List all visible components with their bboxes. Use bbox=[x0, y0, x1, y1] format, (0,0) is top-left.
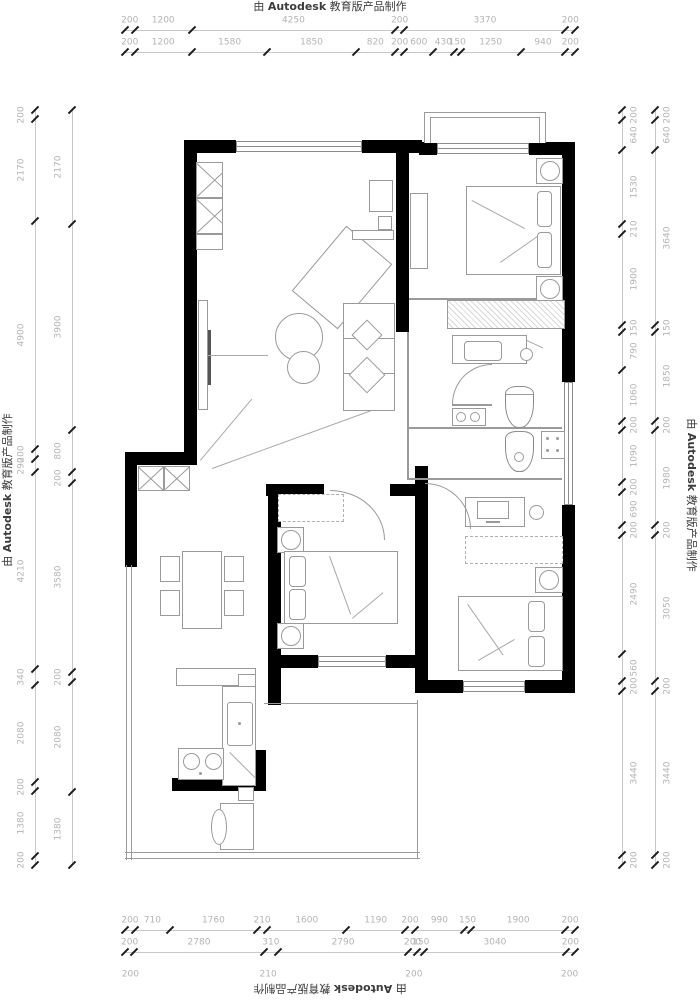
window bbox=[318, 656, 386, 667]
dimension-label: 150 bbox=[459, 917, 476, 926]
dimension-tick bbox=[651, 521, 659, 529]
dimension-tick bbox=[618, 426, 626, 434]
washing-machine-door bbox=[211, 809, 227, 845]
dimension-label: 430 bbox=[435, 39, 452, 48]
dimension-tick bbox=[31, 787, 39, 795]
dimension-label: 2080 bbox=[55, 726, 64, 749]
wall bbox=[386, 655, 415, 668]
dimension-tick bbox=[561, 948, 569, 956]
dimension-label: 200 bbox=[405, 971, 422, 980]
bath-wardrobe bbox=[447, 300, 565, 329]
dimension-tick bbox=[571, 48, 579, 56]
window bbox=[463, 681, 525, 692]
dimension-line bbox=[125, 52, 575, 53]
watermark-top: 由 Autodesk 教育版产品制作 bbox=[220, 0, 440, 14]
dimension-label: 2170 bbox=[18, 159, 27, 182]
dimension-label: 200 bbox=[18, 778, 27, 795]
dimension-tick bbox=[31, 665, 39, 673]
dimension-tick bbox=[651, 106, 659, 114]
watermark-suffix: 教育版产品制作 bbox=[326, 0, 407, 13]
lamp bbox=[540, 279, 560, 299]
dimension-tick bbox=[460, 926, 468, 934]
dimension-label: 1900 bbox=[507, 917, 530, 926]
dimension-tick bbox=[131, 926, 139, 934]
pillow bbox=[289, 589, 306, 620]
pillow bbox=[528, 636, 545, 667]
dimension-tick bbox=[263, 926, 271, 934]
pillow bbox=[528, 601, 545, 632]
wall bbox=[562, 142, 575, 382]
dimension-tick bbox=[263, 48, 271, 56]
dimension-label: 200 bbox=[562, 39, 579, 48]
wardrobe bbox=[410, 193, 428, 269]
dimension-label: 1090 bbox=[631, 445, 640, 468]
wardrobe bbox=[196, 162, 223, 198]
dimension-label: 3440 bbox=[631, 762, 640, 785]
dimension-label: 200 bbox=[561, 917, 578, 926]
dimension-label: 640 bbox=[631, 126, 640, 143]
dimension-tick bbox=[618, 146, 626, 154]
dimension-tick bbox=[618, 686, 626, 694]
sofa bbox=[343, 303, 395, 411]
chair bbox=[224, 556, 244, 582]
dimension-label: 2170 bbox=[55, 156, 64, 179]
dimension-label: 200 bbox=[121, 17, 138, 26]
dimension-line bbox=[125, 30, 575, 31]
washer-knob bbox=[556, 437, 559, 440]
dimension-tick bbox=[188, 26, 196, 34]
dimension-label: 200 bbox=[18, 446, 27, 463]
dimension-tick bbox=[31, 851, 39, 859]
dimension-label: 200 bbox=[18, 852, 27, 869]
door-arc bbox=[425, 483, 471, 529]
dimension-label: 1760 bbox=[202, 917, 225, 926]
dimension-tick bbox=[571, 926, 579, 934]
shoe-cabinet bbox=[138, 466, 164, 491]
chair bbox=[160, 590, 180, 616]
dimension-tick bbox=[130, 948, 138, 956]
dimension-tick bbox=[651, 530, 659, 538]
dimension-label: 200 bbox=[664, 521, 673, 538]
dimension-tick bbox=[68, 468, 76, 476]
dimension-label: 1600 bbox=[295, 917, 318, 926]
burner bbox=[183, 753, 200, 770]
window bbox=[236, 141, 362, 152]
wall bbox=[525, 680, 575, 693]
dimension-label: 3040 bbox=[484, 939, 507, 948]
dimension-tick bbox=[391, 48, 399, 56]
dimension-tick bbox=[651, 861, 659, 869]
dimension-tick bbox=[618, 530, 626, 538]
dimension-tick bbox=[391, 26, 399, 34]
dimension-tick bbox=[31, 778, 39, 786]
dimension-label: 290 bbox=[18, 457, 27, 474]
wall bbox=[427, 680, 463, 693]
dimension-label: 200 bbox=[391, 39, 408, 48]
pillow bbox=[537, 191, 552, 227]
sight-line bbox=[208, 355, 268, 356]
dimension-label: 1380 bbox=[18, 812, 27, 835]
dimension-tick bbox=[31, 216, 39, 224]
dimension-tick bbox=[68, 220, 76, 228]
watermark-brand: Autodesk bbox=[268, 0, 326, 13]
toilet bbox=[505, 386, 534, 428]
dimension-tick bbox=[274, 948, 282, 956]
lamp bbox=[281, 626, 301, 646]
dimension-tick bbox=[561, 48, 569, 56]
dimension-tick bbox=[413, 948, 421, 956]
wall bbox=[184, 140, 236, 153]
dimension-label: 200 bbox=[561, 971, 578, 980]
basin bbox=[456, 412, 466, 422]
wall bbox=[362, 140, 422, 153]
dimension-label: 990 bbox=[431, 917, 448, 926]
dimension-tick bbox=[651, 328, 659, 336]
dimension-tick bbox=[166, 926, 174, 934]
dimension-tick bbox=[253, 926, 261, 934]
dimension-label: 4900 bbox=[18, 324, 27, 347]
partition bbox=[409, 478, 562, 480]
dimension-tick bbox=[121, 948, 129, 956]
dimension-tick bbox=[31, 681, 39, 689]
dimension-label: 200 bbox=[664, 852, 673, 869]
dimension-tick bbox=[31, 455, 39, 463]
dimension-tick bbox=[68, 861, 76, 869]
washer-knob bbox=[556, 449, 559, 452]
dimension-label: 1200 bbox=[152, 17, 175, 26]
dimension-label: 200 bbox=[631, 479, 640, 496]
dimension-tick bbox=[449, 48, 457, 56]
dimension-tick bbox=[31, 445, 39, 453]
dimension-label: 560 bbox=[631, 659, 640, 676]
dimension-label: 200 bbox=[631, 677, 640, 694]
dimension-label: 310 bbox=[262, 939, 279, 948]
dimension-label: 150 bbox=[449, 39, 466, 48]
dimension-tick bbox=[68, 678, 76, 686]
pillow bbox=[537, 232, 552, 268]
lamp bbox=[539, 570, 559, 590]
dimension-tick bbox=[467, 926, 475, 934]
wall-cabinet bbox=[369, 180, 393, 212]
dimension-tick bbox=[651, 426, 659, 434]
watermark-prefix: 由 bbox=[253, 0, 268, 13]
dimension-tick bbox=[618, 521, 626, 529]
dimension-tick bbox=[618, 321, 626, 329]
chair bbox=[160, 556, 180, 582]
dimension-tick bbox=[651, 115, 659, 123]
round-stool bbox=[287, 351, 320, 384]
floor-plan-canvas: 由 Autodesk 教育版产品制作 由 Autodesk 教育版产品制作 由 … bbox=[0, 0, 700, 1000]
wall bbox=[125, 462, 137, 567]
tv-stand bbox=[198, 300, 208, 410]
dimension-tick bbox=[618, 106, 626, 114]
dimension-label: 3370 bbox=[473, 17, 496, 26]
dimension-tick bbox=[68, 668, 76, 676]
dimension-label: 200 bbox=[664, 677, 673, 694]
dimension-tick bbox=[68, 106, 76, 114]
dimension-label: 1900 bbox=[631, 268, 640, 291]
dimension-tick bbox=[188, 48, 196, 56]
dimension-tick bbox=[618, 219, 626, 227]
toilet-flush bbox=[514, 452, 524, 462]
dimension-label: 150 bbox=[631, 320, 640, 337]
window bbox=[437, 143, 529, 154]
dimension-tick bbox=[342, 926, 350, 934]
dimension-label: 1200 bbox=[152, 39, 175, 48]
dimension-line bbox=[622, 110, 623, 865]
dimension-label: 2780 bbox=[188, 939, 211, 948]
dimension-label: 1250 bbox=[479, 39, 502, 48]
pillow bbox=[289, 556, 306, 587]
washer-knob bbox=[546, 449, 549, 452]
dimension-tick bbox=[130, 48, 138, 56]
balcony-rail bbox=[131, 565, 132, 860]
dimension-tick bbox=[651, 686, 659, 694]
dimension-label: 2080 bbox=[18, 722, 27, 745]
dimension-label: 200 bbox=[401, 917, 418, 926]
dimension-tick bbox=[571, 26, 579, 34]
shelf bbox=[352, 230, 394, 240]
dimension-label: 200 bbox=[664, 417, 673, 434]
dimension-label: 1850 bbox=[300, 39, 323, 48]
dimension-label: 200 bbox=[121, 917, 138, 926]
lamp bbox=[281, 530, 301, 550]
wall bbox=[419, 142, 437, 155]
lamp bbox=[540, 161, 560, 181]
dimension-tick bbox=[31, 115, 39, 123]
dimension-label: 200 bbox=[391, 17, 408, 26]
dimension-label: 1980 bbox=[664, 466, 673, 489]
dimension-tick bbox=[516, 48, 524, 56]
dimension-tick bbox=[31, 861, 39, 869]
dimension-tick bbox=[259, 948, 267, 956]
dimension-label: 3050 bbox=[664, 596, 673, 619]
dimension-tick bbox=[400, 26, 408, 34]
dimension-label: 800 bbox=[55, 443, 64, 460]
dimension-label: 1190 bbox=[364, 917, 387, 926]
dimension-label: 200 bbox=[562, 17, 579, 26]
dimension-tick bbox=[401, 926, 409, 934]
dimension-label: 1850 bbox=[664, 365, 673, 388]
dimension-label: 200 bbox=[404, 939, 421, 948]
dimension-tick bbox=[457, 48, 465, 56]
dimension-label: 340 bbox=[18, 668, 27, 685]
dimension-tick bbox=[651, 321, 659, 329]
dimension-tick bbox=[618, 650, 626, 658]
dimension-tick bbox=[651, 677, 659, 685]
wardrobe bbox=[196, 198, 223, 234]
dimension-label: 790 bbox=[631, 342, 640, 359]
balcony-rail bbox=[125, 858, 420, 859]
dimension-label: 710 bbox=[144, 917, 161, 926]
dimension-label: 2490 bbox=[631, 583, 640, 606]
dimension-label: 200 bbox=[631, 417, 640, 434]
dimension-label: 200 bbox=[664, 106, 673, 123]
stove-knob bbox=[199, 772, 202, 775]
dimension-tick bbox=[651, 851, 659, 859]
dimension-label: 200 bbox=[122, 971, 139, 980]
dimension-label: 1530 bbox=[631, 175, 640, 198]
washer-knob bbox=[546, 437, 549, 440]
dimension-tick bbox=[31, 106, 39, 114]
watermark-bottom: 由 Autodesk 教育版产品制作 bbox=[220, 981, 440, 995]
wall bbox=[396, 142, 409, 332]
dimension-tick bbox=[68, 426, 76, 434]
dimension-tick bbox=[68, 788, 76, 796]
dimension-label: 690 bbox=[631, 500, 640, 517]
wall bbox=[281, 655, 318, 668]
monitor bbox=[477, 501, 509, 519]
dimension-label: 200 bbox=[18, 106, 27, 123]
dimension-label: 600 bbox=[410, 39, 427, 48]
dimension-label: 4250 bbox=[282, 17, 305, 26]
wall bbox=[390, 484, 415, 496]
balcony-boundary bbox=[264, 703, 418, 704]
dimension-tick bbox=[429, 48, 437, 56]
partition bbox=[409, 427, 562, 429]
dimension-tick bbox=[618, 115, 626, 123]
door-arc bbox=[330, 490, 385, 540]
dimension-label: 3900 bbox=[55, 316, 64, 339]
dimension-label: 200 bbox=[121, 39, 138, 48]
washer bbox=[541, 431, 565, 459]
partition bbox=[407, 332, 409, 480]
dimension-label: 1380 bbox=[55, 817, 64, 840]
window bbox=[564, 382, 573, 505]
dimension-tick bbox=[420, 948, 428, 956]
faucet bbox=[238, 722, 241, 725]
watermark-left: 由 Autodesk 教育版产品制作 bbox=[1, 380, 15, 600]
dimension-label: 210 bbox=[260, 971, 277, 980]
balcony-rail bbox=[417, 700, 418, 858]
dimension-label: 4210 bbox=[18, 559, 27, 582]
dimension-label: 3640 bbox=[664, 226, 673, 249]
dimension-label: 3440 bbox=[664, 762, 673, 785]
dimension-label: 1580 bbox=[218, 39, 241, 48]
dimension-tick bbox=[618, 478, 626, 486]
dimension-tick bbox=[618, 677, 626, 685]
dimension-label: 2790 bbox=[332, 939, 355, 948]
dimension-tick bbox=[411, 926, 419, 934]
watermark-right: 由 Autodesk 教育版产品制作 bbox=[684, 385, 698, 605]
dimension-tick bbox=[130, 26, 138, 34]
toilet-tank bbox=[506, 394, 533, 395]
dimension-line bbox=[125, 952, 575, 953]
dimension-tick bbox=[618, 488, 626, 496]
dimension-tick bbox=[561, 26, 569, 34]
dimension-label: 940 bbox=[534, 39, 551, 48]
dimension-tick bbox=[651, 146, 659, 154]
dimension-tick bbox=[68, 479, 76, 487]
dining-table bbox=[182, 551, 222, 629]
dimension-tick bbox=[561, 926, 569, 934]
dimension-tick bbox=[618, 416, 626, 424]
dimension-tick bbox=[400, 48, 408, 56]
desk-lamp bbox=[529, 505, 544, 520]
shelf bbox=[465, 536, 563, 564]
dimension-label: 640 bbox=[664, 126, 673, 143]
dimension-label: 200 bbox=[121, 939, 138, 948]
sink bbox=[464, 341, 502, 361]
double-bed bbox=[458, 596, 563, 671]
dimension-tick bbox=[404, 948, 412, 956]
dimension-tick bbox=[618, 861, 626, 869]
dimension-line bbox=[35, 110, 36, 865]
dimension-label: 210 bbox=[631, 220, 640, 237]
dimension-tick bbox=[31, 468, 39, 476]
dimension-label: 200 bbox=[631, 106, 640, 123]
dimension-label: 200 bbox=[631, 521, 640, 538]
wall bbox=[562, 505, 575, 693]
balcony-rail bbox=[125, 852, 420, 853]
tv bbox=[208, 330, 211, 385]
door-leaf bbox=[452, 404, 492, 406]
dimension-label: 200 bbox=[55, 669, 64, 686]
monitor-stand bbox=[486, 521, 500, 523]
dimension-line bbox=[125, 930, 575, 931]
wall-box bbox=[378, 216, 392, 230]
balcony-rail bbox=[126, 565, 127, 860]
dimension-tick bbox=[618, 366, 626, 374]
dimension-tick bbox=[121, 48, 129, 56]
dimension-label: 210 bbox=[253, 917, 270, 926]
floor-drain bbox=[238, 787, 254, 801]
dimension-tick bbox=[618, 328, 626, 336]
shower-head bbox=[520, 348, 533, 361]
dimension-tick bbox=[571, 948, 579, 956]
chair bbox=[224, 590, 244, 616]
basin bbox=[470, 412, 480, 422]
dimension-tick bbox=[351, 48, 359, 56]
dimension-label: 820 bbox=[367, 39, 384, 48]
dimension-label: 150 bbox=[412, 939, 429, 948]
dimension-tick bbox=[618, 229, 626, 237]
burner bbox=[205, 753, 222, 770]
dimension-line bbox=[655, 110, 656, 865]
dimension-tick bbox=[121, 26, 129, 34]
dimension-tick bbox=[618, 851, 626, 859]
dimension-label: 200 bbox=[631, 852, 640, 869]
door-arc bbox=[452, 364, 492, 404]
shower-arm bbox=[527, 340, 544, 349]
dimension-label: 200 bbox=[55, 469, 64, 486]
dimension-label: 200 bbox=[562, 939, 579, 948]
dimension-tick bbox=[651, 416, 659, 424]
cabinet bbox=[196, 234, 223, 250]
bay-window-inner bbox=[430, 117, 540, 143]
shoe-cabinet bbox=[164, 466, 190, 491]
dimension-tick bbox=[121, 926, 129, 934]
dimension-label: 150 bbox=[664, 320, 673, 337]
dimension-line bbox=[72, 110, 73, 865]
dimension-label: 1060 bbox=[631, 384, 640, 407]
dimension-label: 3580 bbox=[55, 566, 64, 589]
